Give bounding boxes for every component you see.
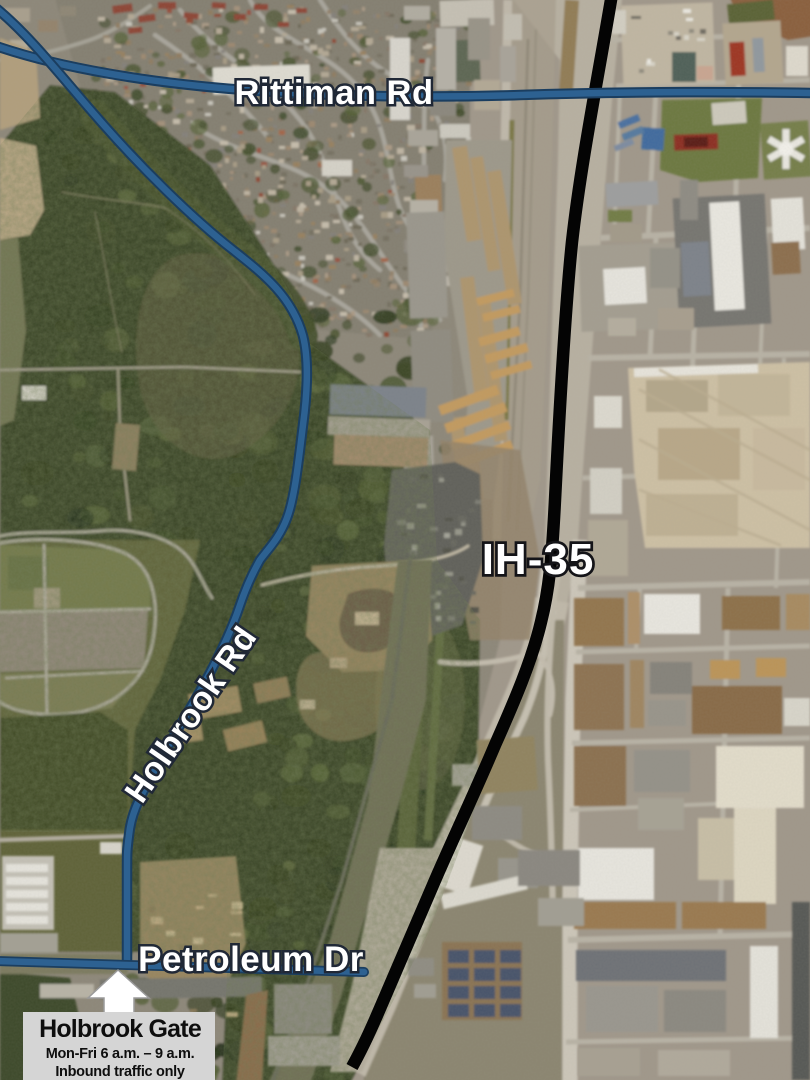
svg-text:IH-35: IH-35	[482, 535, 595, 584]
svg-text:Holbrook Gate: Holbrook Gate	[39, 1015, 202, 1043]
svg-text:Inbound traffic only: Inbound traffic only	[55, 1064, 185, 1080]
svg-text:Mon-Fri 6 a.m. – 9 a.m.: Mon-Fri 6 a.m. – 9 a.m.	[46, 1046, 195, 1062]
svg-text:Petroleum Dr: Petroleum Dr	[138, 940, 364, 979]
svg-text:Rittiman Rd: Rittiman Rd	[234, 74, 433, 112]
